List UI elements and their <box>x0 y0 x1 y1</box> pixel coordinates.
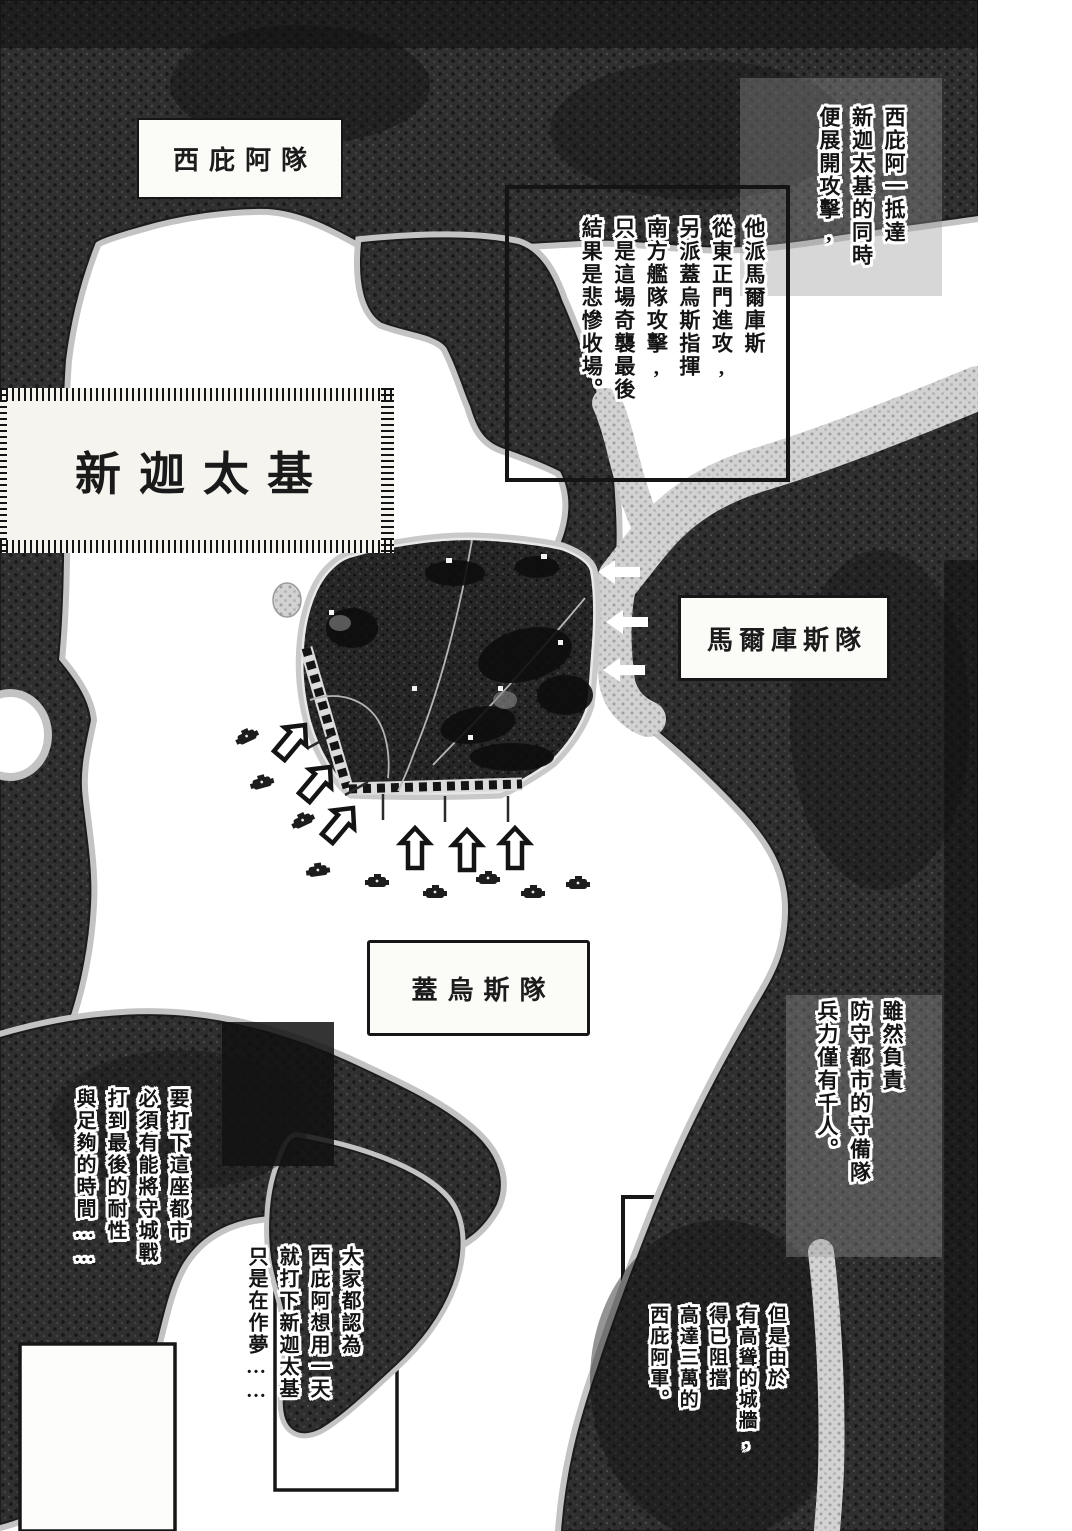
lagoon-islet <box>273 583 301 617</box>
narration-city-walls: 但是由於 有高聳的城牆, 得已阻擋 高達三萬的 西庇阿軍。 <box>628 1305 790 1520</box>
city-name: 新迦太基 <box>0 388 394 553</box>
corner-panel <box>20 1344 175 1531</box>
label-box-gaius-unit: 蓋烏斯隊 <box>367 940 590 1036</box>
label-box-scipio-unit: 西庇阿隊 <box>137 118 343 199</box>
narration-battle-plan: 他派馬爾庫斯 從東正門進攻, 另派蓋烏斯指揮 南方艦隊攻擊, 只是這場奇襲最後 … <box>540 217 770 467</box>
gaius-unit-label: 蓋烏斯隊 <box>401 970 555 1007</box>
label-box-marcus-unit: 馬爾庫斯隊 <box>678 595 890 681</box>
manga-map-page: 西庇阿隊 新迦太基 馬爾庫斯隊 蓋烏斯隊 西庇阿一抵達 新迦太基的同時 便展開攻… <box>0 0 1072 1531</box>
city-name-banner: 新迦太基 <box>0 388 394 553</box>
marcus-unit-label: 馬爾庫斯隊 <box>701 620 867 657</box>
scipio-unit-label: 西庇阿隊 <box>163 140 317 177</box>
narration-scipio-attack: 西庇阿一抵達 新迦太基的同時 便展開攻擊, <box>792 106 910 341</box>
battle-plan-frame: 他派馬爾庫斯 從東正門進攻, 另派蓋烏斯指揮 南方艦隊攻擊, 只是這場奇襲最後 … <box>505 185 790 482</box>
narration-dream: 大家都認為 西庇阿想用一天 就打下新迦太基 只是在作夢…… <box>222 1246 364 1486</box>
narration-siege-patience: 要打下這座都市 必須有能將守城戰 打到最後的耐性 與足夠的時間…… <box>46 1088 192 1338</box>
south-assault-arrows <box>401 828 529 870</box>
narration-garrison: 雖然負責 防守都市的守備隊 兵力僅有千人。 <box>790 1000 908 1260</box>
page-margin <box>978 0 1072 1531</box>
